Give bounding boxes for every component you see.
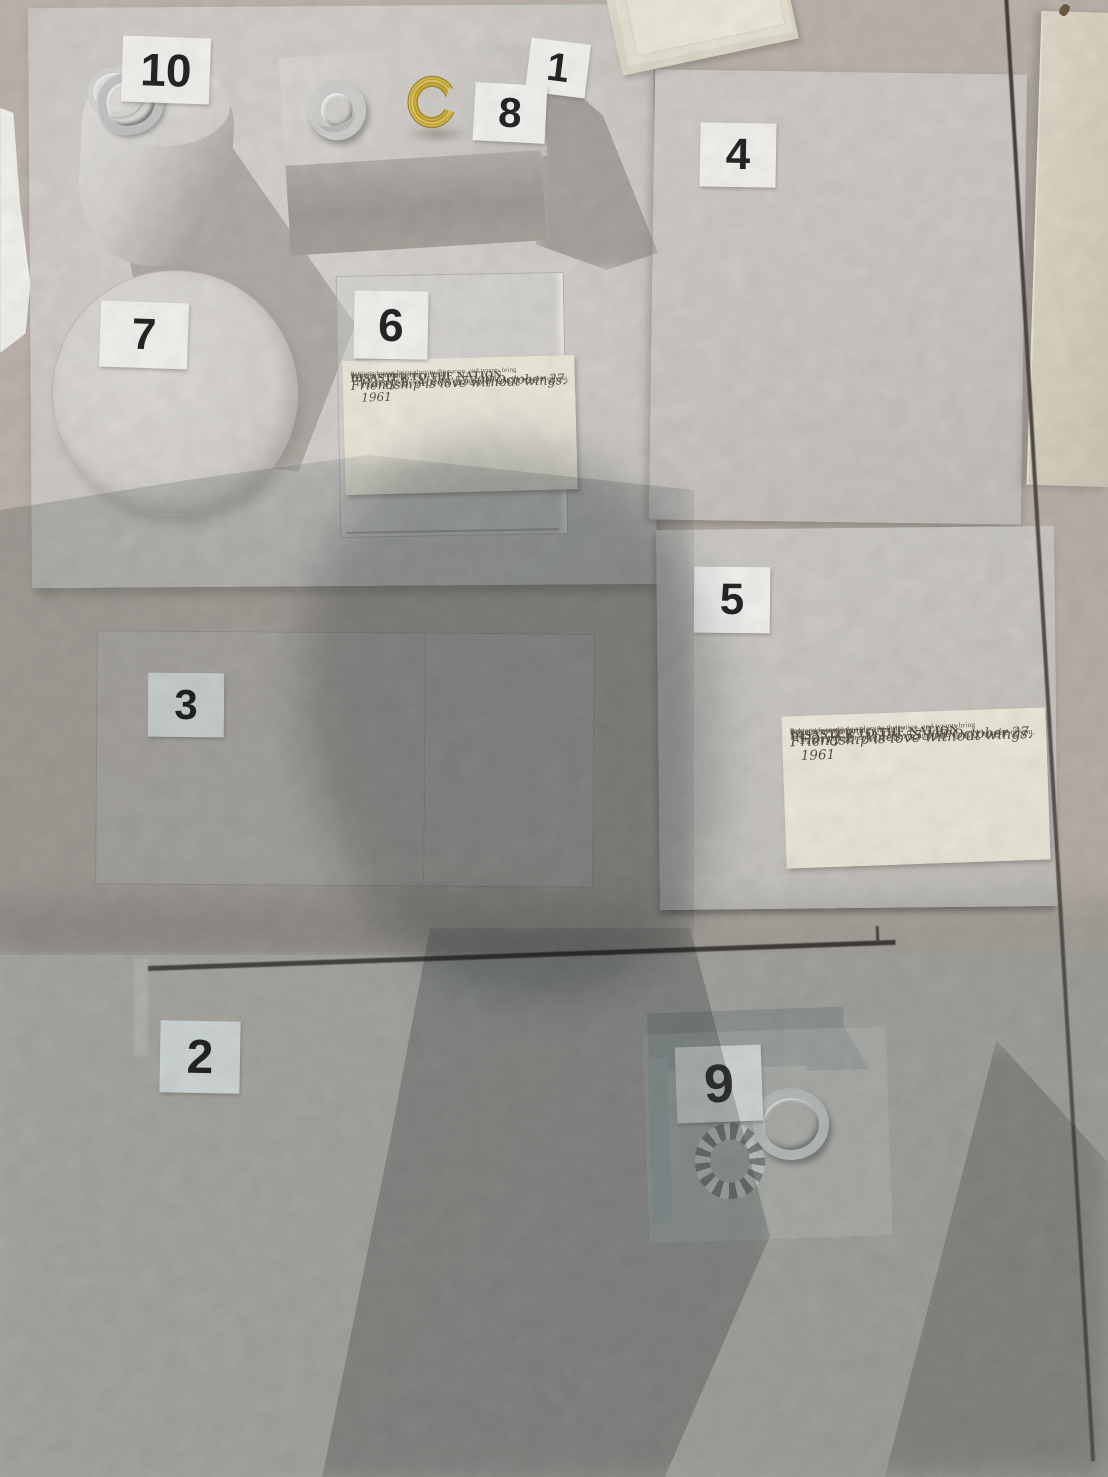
- beige-side-panel: [1027, 11, 1108, 487]
- note-card-5: Patriotic heroes bring glory to the nati…: [781, 707, 1050, 868]
- evidence-label-7: 7: [99, 300, 189, 369]
- label-number: 10: [139, 42, 192, 98]
- label-number: 2: [186, 1029, 214, 1084]
- floor-gap-gleam: [134, 958, 148, 1056]
- evidence-label-2: 2: [159, 1020, 240, 1093]
- evidence-label-4: 4: [699, 122, 776, 187]
- note-card-6: Patriotic heroes bring glory to the nati…: [342, 355, 577, 495]
- white-surface-edge: [0, 108, 32, 353]
- label-number: 9: [703, 1052, 735, 1115]
- floor-gap-notch: [876, 926, 880, 942]
- label-number: 8: [497, 88, 523, 137]
- label-number: 1: [544, 44, 572, 91]
- paper-stack: [604, 0, 799, 80]
- label-number: 7: [131, 310, 157, 361]
- evidence-label-9: 9: [675, 1045, 764, 1124]
- label-number: 6: [378, 298, 405, 352]
- silver-ring-on-block: [308, 80, 366, 140]
- plain-band-ring-9: [753, 1088, 829, 1160]
- jewelry-display-photo: 10 1 8 7 6 4 5 3 2 9 Patriotic heroes br…: [0, 0, 1108, 1477]
- evidence-label-6: 6: [353, 290, 428, 359]
- label-number: 5: [720, 575, 745, 625]
- acrylic-sheet-3: [95, 630, 595, 887]
- evidence-label-10: 10: [121, 35, 211, 104]
- label-number: 3: [174, 681, 198, 729]
- evidence-label-8: 8: [473, 82, 548, 144]
- gold-ring-on-block: [399, 67, 465, 137]
- evidence-label-3: 3: [148, 673, 225, 738]
- evidence-label-5: 5: [694, 567, 771, 634]
- label-number: 4: [725, 130, 750, 180]
- display-block-front: [285, 150, 546, 255]
